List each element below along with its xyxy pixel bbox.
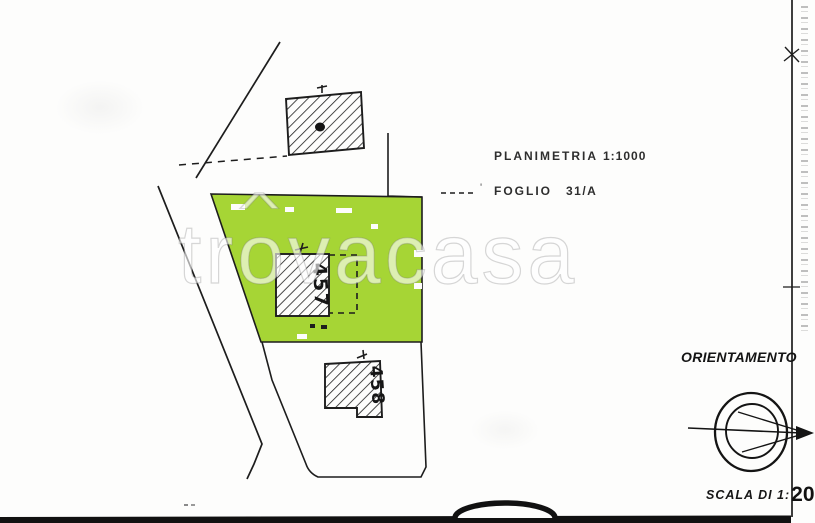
- planimetria-scale-value: 1:1000: [603, 149, 646, 163]
- bottom-rule-hump: [455, 503, 555, 518]
- building-top-ink-dot: [315, 123, 325, 132]
- parcel-number-457: 457: [308, 262, 332, 309]
- building-top-hatched: [286, 92, 364, 155]
- foglio-label: FOGLIO: [494, 184, 552, 198]
- scale-value: 20: [791, 484, 814, 505]
- foglio-value: 31/A: [566, 184, 597, 198]
- dashed-boundary-line: [179, 156, 287, 165]
- compass-lower-ray: [742, 434, 803, 452]
- planimetria-label: PLANIMETRIA: [494, 149, 598, 163]
- scan-smudge: [470, 410, 540, 450]
- compass: [688, 393, 814, 471]
- scale-note: SCALA DI 1: 20: [706, 484, 815, 505]
- scale-label: SCALA DI 1:: [706, 488, 790, 505]
- compass-upper-ray: [738, 412, 803, 432]
- right-margin-faint-text: [801, 6, 808, 332]
- ink-speck: [184, 504, 188, 506]
- pencil-tick: ': [480, 182, 482, 194]
- compass-axis-line: [688, 428, 802, 433]
- north-arrowhead: [796, 426, 814, 440]
- cadastral-plan-page: 457 458 PLANIMETRIA 1:1000 ' FO: [0, 0, 815, 523]
- site-plan: 457 458: [0, 0, 815, 523]
- boundary-jog: [388, 133, 422, 197]
- parcel-number-458: 458: [365, 365, 388, 406]
- upper-boundary-line: [196, 42, 280, 178]
- bottom-heavy-rule: [0, 516, 791, 523]
- scan-smudge: [55, 80, 145, 135]
- building-458-top-tick: [357, 350, 367, 359]
- building-top-tick: [317, 85, 327, 93]
- orientamento-label: ORIENTAMENTO: [681, 349, 797, 365]
